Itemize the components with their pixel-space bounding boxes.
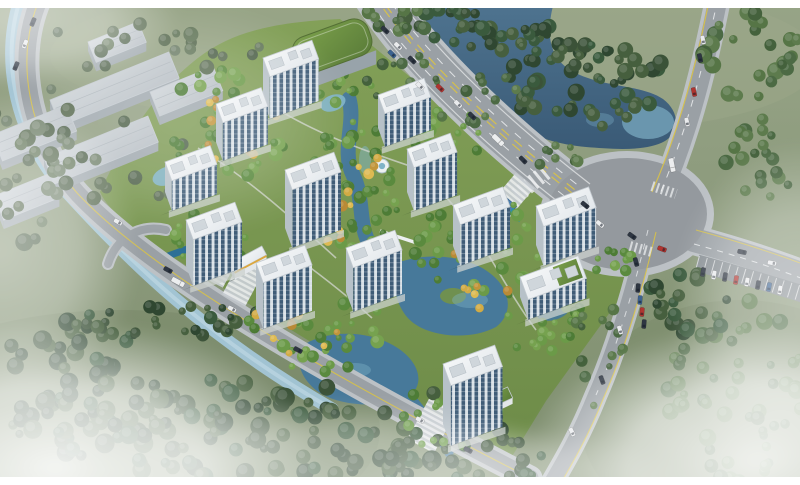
tree-highlight xyxy=(325,326,330,331)
tree-highlight xyxy=(570,60,577,67)
tree-highlight xyxy=(502,74,507,79)
tree-highlight xyxy=(508,29,514,35)
tree-highlight xyxy=(568,145,571,148)
tree-highlight xyxy=(539,328,545,334)
tree-highlight xyxy=(398,59,404,65)
windshield xyxy=(636,289,639,291)
tree-highlight xyxy=(182,328,186,332)
aerial-render xyxy=(0,0,800,485)
tree-highlight xyxy=(522,97,527,102)
tree-highlight xyxy=(468,43,473,48)
tree-highlight xyxy=(611,261,616,266)
tree-highlight xyxy=(579,324,583,328)
tree-highlight xyxy=(621,249,625,253)
tree-highlight xyxy=(393,18,397,22)
tree-highlight xyxy=(317,333,323,339)
tree-highlight xyxy=(327,361,331,365)
tree-highlight xyxy=(573,312,577,316)
tree-highlight xyxy=(153,322,157,326)
tree-highlight xyxy=(334,330,337,333)
tree-highlight xyxy=(720,156,728,164)
tree-highlight xyxy=(479,79,483,83)
tree-highlight xyxy=(598,77,602,81)
tree-highlight xyxy=(369,327,374,332)
tree-highlight xyxy=(226,329,229,332)
tree-highlight xyxy=(553,107,558,112)
tree-highlight xyxy=(462,86,468,92)
tree-highlight xyxy=(599,317,603,321)
tree-highlight xyxy=(436,210,442,216)
tree-highlight xyxy=(606,322,611,327)
tree-highlight xyxy=(181,254,184,257)
tree-highlight xyxy=(350,160,354,164)
tree-highlight xyxy=(616,56,621,61)
tree-highlight xyxy=(603,47,608,52)
tree-highlight xyxy=(579,312,584,317)
tree-highlight xyxy=(381,230,384,233)
tree-highlight xyxy=(758,126,764,132)
top-white-band xyxy=(0,0,800,8)
tree-highlight xyxy=(598,122,603,127)
tree-highlight xyxy=(476,130,479,133)
tree-highlight xyxy=(363,226,368,231)
tree-highlight xyxy=(416,53,420,57)
tree-highlight xyxy=(584,64,589,69)
tree-highlight xyxy=(619,44,627,52)
tree-highlight xyxy=(374,155,378,159)
tree-highlight xyxy=(474,283,478,287)
tree-highlight xyxy=(448,231,452,235)
tree-highlight xyxy=(785,53,791,59)
tree-highlight xyxy=(476,305,480,309)
tree-highlight xyxy=(430,119,436,125)
tree-highlight xyxy=(206,312,213,319)
tree-highlight xyxy=(278,340,285,347)
tree-highlight xyxy=(438,112,443,117)
pavilion-glass xyxy=(379,163,385,169)
tree-highlight xyxy=(547,332,552,337)
tree-highlight xyxy=(611,80,615,84)
tree-highlight xyxy=(657,290,662,295)
tree-highlight xyxy=(187,302,192,307)
tree-highlight xyxy=(533,47,538,52)
tree-highlight xyxy=(609,305,615,311)
tree-highlight xyxy=(529,55,536,62)
tree-highlight xyxy=(572,318,578,324)
tree-highlight xyxy=(538,336,543,341)
tree-highlight xyxy=(759,141,764,146)
tree-highlight xyxy=(559,46,564,51)
tree-highlight xyxy=(553,39,560,46)
tree-highlight xyxy=(321,343,324,346)
tree-highlight xyxy=(519,43,523,47)
tree-highlight xyxy=(271,336,275,340)
tree-highlight xyxy=(716,22,720,26)
windshield xyxy=(640,313,643,315)
tree-highlight xyxy=(578,356,584,362)
tree-highlight xyxy=(577,52,581,56)
tree-highlight xyxy=(321,381,329,389)
tree-highlight xyxy=(513,235,519,241)
tree-highlight xyxy=(623,113,629,119)
tree-highlight xyxy=(421,60,426,65)
site-plan-svg xyxy=(0,0,800,485)
tree-highlight xyxy=(423,8,429,14)
tree-highlight xyxy=(192,326,197,331)
tree-highlight xyxy=(392,199,396,203)
tree-highlight xyxy=(506,313,510,317)
tree-highlight xyxy=(303,347,307,351)
tree-highlight xyxy=(629,54,637,62)
tree-highlight xyxy=(522,26,527,31)
tree-highlight xyxy=(343,343,348,348)
vehicle-body xyxy=(639,307,644,316)
tree-highlight xyxy=(492,96,497,101)
tree-highlight xyxy=(730,36,734,40)
tree-highlight xyxy=(654,56,662,64)
tree-highlight xyxy=(385,175,391,181)
tree-highlight xyxy=(348,203,351,206)
tree-highlight xyxy=(536,160,541,165)
tree-highlight xyxy=(767,77,773,83)
tree-highlight xyxy=(785,33,793,41)
tree-highlight xyxy=(462,9,467,14)
tree-highlight xyxy=(152,317,156,321)
tree-highlight xyxy=(374,93,377,96)
tree-highlight xyxy=(344,183,349,188)
tree-highlight xyxy=(552,320,555,323)
tree-highlight xyxy=(472,10,477,15)
tree-highlight xyxy=(177,241,181,245)
tree-highlight xyxy=(461,124,464,127)
tree-highlight xyxy=(486,39,492,45)
tree-highlight xyxy=(387,168,391,172)
tree-highlight xyxy=(723,87,731,95)
windshield xyxy=(638,301,641,303)
car xyxy=(639,307,644,316)
tree-highlight xyxy=(371,13,376,18)
tree-highlight xyxy=(730,143,736,149)
tree-highlight xyxy=(530,340,534,344)
tree-highlight xyxy=(596,256,599,259)
tree-highlight xyxy=(434,108,440,114)
car xyxy=(637,295,642,304)
tree-highlight xyxy=(430,259,435,264)
tree-highlight xyxy=(611,99,617,105)
tree-highlight xyxy=(552,155,556,159)
tree-highlight xyxy=(403,24,408,29)
tree-highlight xyxy=(573,157,579,163)
vehicle-body xyxy=(637,295,642,304)
tree-highlight xyxy=(350,321,353,324)
tree-highlight xyxy=(430,33,436,39)
tree-highlight xyxy=(344,363,350,369)
tree-highlight xyxy=(409,390,415,396)
tree-highlight xyxy=(530,77,536,83)
tree-highlight xyxy=(378,60,384,66)
vehicle-body xyxy=(635,283,640,292)
tree-highlight xyxy=(461,285,465,289)
tree-highlight xyxy=(372,216,378,222)
tree-highlight xyxy=(308,352,314,358)
tree-highlight xyxy=(496,44,503,51)
tree-highlight xyxy=(768,132,772,136)
tree-highlight xyxy=(736,127,742,133)
tree-highlight xyxy=(644,98,652,106)
tree-highlight xyxy=(497,263,504,270)
vehicle-body xyxy=(641,319,646,328)
tree-highlight xyxy=(334,321,338,325)
tree-highlight xyxy=(228,315,231,318)
tree-highlight xyxy=(539,23,546,30)
tree-highlight xyxy=(205,305,208,308)
tree-highlight xyxy=(372,336,379,343)
tree-highlight xyxy=(755,71,761,77)
tree-highlight xyxy=(755,93,760,98)
tree-highlight xyxy=(435,277,439,281)
tree-highlight xyxy=(504,287,509,292)
tree-highlight xyxy=(567,333,572,338)
tree-highlight xyxy=(373,127,379,133)
tree-highlight xyxy=(287,350,290,353)
tree-highlight xyxy=(345,188,349,192)
tree-highlight xyxy=(758,115,764,121)
tree-highlight xyxy=(588,109,595,116)
tree-highlight xyxy=(419,23,426,30)
tree-highlight xyxy=(793,35,799,41)
tree-highlight xyxy=(360,130,364,134)
tree-highlight xyxy=(482,113,486,117)
tree-highlight xyxy=(450,38,455,43)
tree-highlight xyxy=(523,87,530,94)
tree-highlight xyxy=(391,62,394,65)
tree-highlight xyxy=(622,266,628,272)
tree-highlight xyxy=(355,192,361,198)
tree-highlight xyxy=(513,210,520,217)
tree-highlight xyxy=(371,163,375,167)
tree-highlight xyxy=(511,202,514,205)
tree-highlight xyxy=(415,235,421,241)
tree-highlight xyxy=(650,280,658,288)
tree-highlight xyxy=(476,73,481,78)
tree-highlight xyxy=(433,76,436,79)
tree-highlight xyxy=(365,170,370,175)
tree-highlight xyxy=(535,254,539,258)
tree-highlight xyxy=(251,324,256,329)
tree-highlight xyxy=(243,235,246,238)
mist xyxy=(0,0,360,240)
tree-highlight xyxy=(321,367,327,373)
tree-highlight xyxy=(477,22,485,30)
tree-highlight xyxy=(497,31,503,37)
tree-highlight xyxy=(778,61,783,66)
tree-highlight xyxy=(570,85,579,94)
tree-highlight xyxy=(743,131,749,137)
tree-highlight xyxy=(253,311,258,316)
tree-highlight xyxy=(589,42,593,46)
tree-highlight xyxy=(619,65,627,73)
tree-highlight xyxy=(593,266,597,270)
tree-highlight xyxy=(605,247,609,251)
tree-highlight xyxy=(654,300,659,305)
tree-highlight xyxy=(383,207,388,212)
tree-highlight xyxy=(482,88,486,92)
tree-highlight xyxy=(337,336,340,339)
tree-highlight xyxy=(766,40,772,46)
tree-highlight xyxy=(627,252,632,257)
windshield xyxy=(642,325,645,327)
tree-highlight xyxy=(594,53,600,59)
tree-highlight xyxy=(145,302,152,309)
bottom-white-band xyxy=(0,477,800,485)
tree-highlight xyxy=(434,247,440,253)
tree-highlight xyxy=(565,104,572,111)
tree-highlight xyxy=(514,344,518,348)
tree-highlight xyxy=(371,149,377,155)
tree-highlight xyxy=(245,317,250,322)
tree-highlight xyxy=(543,147,547,151)
tree-highlight xyxy=(363,77,368,82)
tree-highlight xyxy=(513,86,518,91)
tree-highlight xyxy=(427,214,431,218)
tree-highlight xyxy=(579,39,587,47)
tree-highlight xyxy=(220,305,224,309)
tree-highlight xyxy=(473,147,478,152)
tree-highlight xyxy=(410,248,417,255)
tree-highlight xyxy=(508,60,516,68)
tree-highlight xyxy=(394,208,397,211)
tree-highlight xyxy=(455,130,459,134)
tree-highlight xyxy=(339,299,346,306)
tree-highlight xyxy=(459,21,465,27)
tree-highlight xyxy=(548,346,553,351)
tree-highlight xyxy=(371,187,375,191)
tree-highlight xyxy=(630,102,637,109)
tree-highlight xyxy=(364,187,370,193)
tree-highlight xyxy=(180,308,184,312)
tree-highlight xyxy=(347,334,352,339)
tree-highlight xyxy=(522,223,526,227)
tree-highlight xyxy=(430,222,436,228)
tree-highlight xyxy=(564,39,572,47)
car xyxy=(635,283,640,292)
tree-highlight xyxy=(428,388,435,395)
tree-highlight xyxy=(621,89,629,97)
tree-highlight xyxy=(418,260,423,265)
tree-highlight xyxy=(348,220,353,225)
tree-highlight xyxy=(472,291,476,295)
tree-highlight xyxy=(750,8,757,15)
tree-highlight xyxy=(356,165,359,168)
tree-highlight xyxy=(552,142,556,146)
tree-highlight xyxy=(709,28,717,36)
tree-highlight xyxy=(733,91,739,97)
car xyxy=(641,319,646,328)
tree-highlight xyxy=(383,190,387,194)
tree-highlight xyxy=(290,364,293,367)
